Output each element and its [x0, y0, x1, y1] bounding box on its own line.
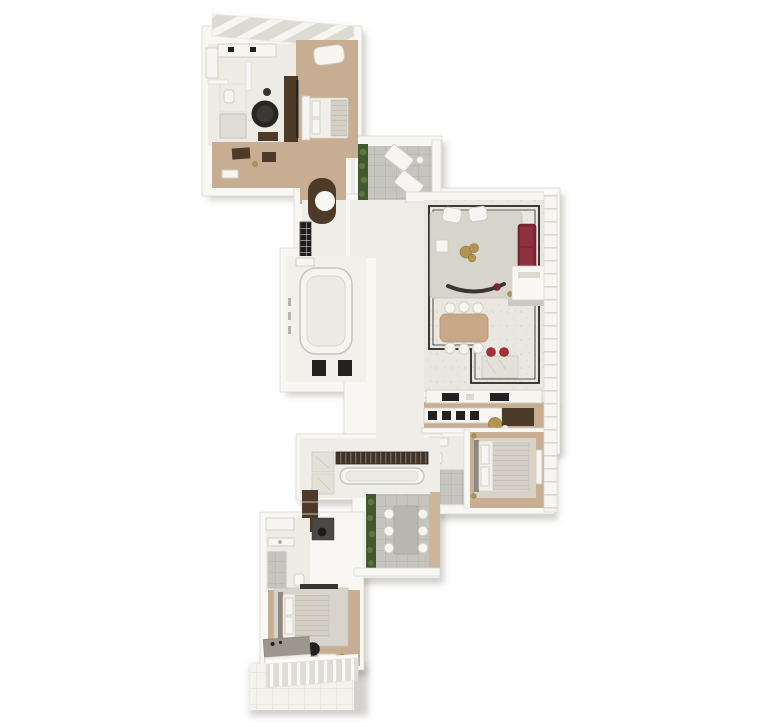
linen-cabinet	[312, 452, 334, 472]
dining-chair	[459, 344, 469, 354]
kitchen-sink	[466, 394, 474, 400]
window-wall-east	[544, 190, 557, 512]
bath3-wardrobe	[266, 518, 294, 530]
dining-area	[440, 302, 488, 354]
fireplace-box	[512, 266, 546, 300]
dining-chair	[473, 343, 483, 353]
east-glazing	[544, 192, 557, 512]
outdoor-chair	[384, 526, 394, 536]
open-shelf-unit	[300, 222, 311, 258]
bath-partition	[246, 62, 251, 90]
bed	[474, 440, 529, 492]
dining-chair	[445, 303, 455, 313]
pillow	[481, 467, 489, 486]
closet-dresser	[232, 147, 251, 159]
makeup-dresser	[258, 132, 278, 141]
shower-floor	[220, 114, 246, 138]
plant	[367, 515, 373, 521]
dining-chair	[473, 303, 483, 313]
pillow	[312, 119, 320, 134]
area-rug	[430, 212, 522, 298]
sofa-cushion	[520, 227, 533, 246]
pillow	[285, 617, 293, 634]
sink-basin	[228, 47, 234, 52]
plant	[361, 177, 368, 184]
wall-hook	[288, 326, 291, 334]
chaise-lounge	[313, 44, 345, 66]
wall-sconce	[472, 494, 476, 498]
bed-throw	[331, 100, 347, 136]
deck-strip	[430, 492, 440, 568]
terrace-side-table	[417, 157, 424, 164]
closet-bench	[222, 170, 238, 178]
wall-sconce	[472, 434, 476, 438]
dining-table	[440, 314, 488, 342]
plant	[359, 163, 365, 169]
shelf	[296, 258, 314, 266]
dressing-room	[286, 256, 366, 382]
sofa	[518, 224, 536, 270]
island-cabinet	[428, 411, 437, 420]
bath-wardrobe	[206, 48, 218, 78]
sink-basin	[278, 540, 282, 544]
oven	[490, 393, 509, 401]
lower-terrace	[354, 492, 440, 576]
bar-stool	[500, 348, 509, 357]
dressing-island-top	[346, 471, 418, 481]
plant	[367, 547, 373, 553]
side-table	[436, 240, 448, 252]
laundry-unit	[338, 360, 352, 376]
double-vanity	[218, 44, 276, 57]
great-room	[424, 200, 548, 392]
closet-dresser	[262, 152, 276, 162]
island-cabinet	[456, 411, 465, 420]
armchair	[468, 206, 488, 222]
bar-stool	[487, 348, 496, 357]
sofa-cushion	[520, 248, 533, 267]
coffee-table-top	[470, 244, 479, 253]
bath-partition	[208, 80, 228, 84]
tv-panel	[296, 80, 299, 138]
wall-hook	[288, 312, 291, 320]
media-wall	[284, 76, 298, 142]
shower-floor	[268, 552, 286, 588]
duvet	[295, 595, 329, 637]
media-bench	[536, 450, 542, 484]
hall-floor-lower	[376, 256, 424, 462]
plant	[368, 560, 373, 565]
outdoor-chair	[418, 526, 428, 536]
bed-headboard	[278, 592, 283, 640]
wine-bar	[502, 408, 534, 426]
outdoor-chair	[418, 509, 428, 519]
bench-cushion	[494, 284, 501, 291]
bedroom-2	[422, 428, 548, 508]
desk-chair	[318, 528, 327, 537]
hall-floor-upper	[350, 200, 424, 258]
closet-island-top	[307, 276, 345, 346]
dining-chair	[445, 343, 455, 353]
plant	[369, 531, 375, 537]
hanging-rail	[336, 452, 428, 464]
outdoor-chair	[418, 543, 428, 553]
pillow	[285, 598, 293, 615]
plant	[359, 191, 365, 197]
decor-object	[253, 162, 258, 167]
coffee-table-top	[468, 254, 476, 262]
media-shelf	[300, 584, 338, 589]
duvet	[493, 442, 529, 490]
kitchen	[424, 390, 546, 433]
vanity-stool	[263, 88, 271, 96]
floor-plan-render	[0, 0, 766, 727]
plant	[368, 499, 374, 505]
sink-basin	[250, 47, 256, 52]
island-cabinet	[470, 411, 479, 420]
terrace2-railing	[354, 568, 440, 576]
bar-counter	[482, 356, 518, 378]
pillow	[312, 101, 320, 117]
wall-hook	[288, 298, 291, 306]
cooktop	[442, 393, 459, 401]
east-glazing-cap	[544, 190, 557, 194]
island-cabinet	[442, 411, 451, 420]
bathtub-interior	[257, 106, 274, 123]
armchair	[442, 207, 462, 224]
outdoor-chair	[384, 509, 394, 519]
niche-cutout	[315, 191, 335, 211]
fireplace-volume	[508, 266, 548, 306]
bath2-partition	[464, 430, 470, 508]
bed-headboard	[474, 440, 479, 492]
dining-chair	[459, 302, 469, 312]
fireplace-opening	[518, 272, 540, 278]
toilet	[224, 90, 234, 103]
pillow	[481, 445, 489, 464]
outdoor-chair	[384, 543, 394, 553]
bed	[278, 592, 329, 640]
plant	[360, 149, 367, 156]
primary-bed	[302, 96, 348, 140]
outdoor-dining-table	[394, 506, 418, 554]
floor-plan-canvas	[0, 0, 766, 727]
laundry-unit	[312, 360, 326, 376]
bed-headboard	[302, 96, 310, 140]
